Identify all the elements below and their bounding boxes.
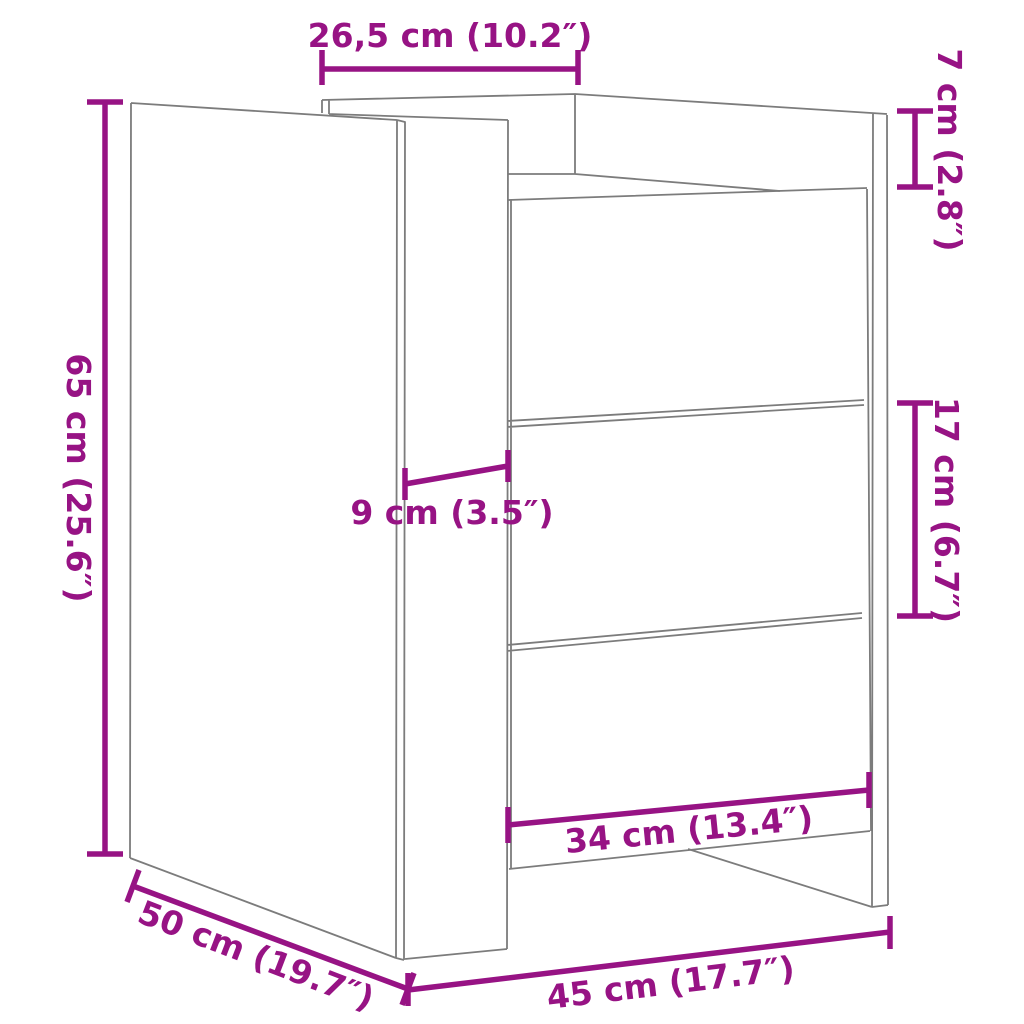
dimension-label-overall-depth: 50 cm (19.7″) [133, 892, 380, 1018]
dimension-top-panel-depth: 26,5 cm (10.2″) [308, 16, 593, 85]
dimension-label-top-rail-height: 7 cm (2.8″) [930, 48, 969, 251]
dimension-line [322, 50, 578, 85]
dimension-label-top-panel-depth: 26,5 cm (10.2″) [308, 16, 593, 55]
dimension-drawer-width: 34 cm (13.4″) [508, 772, 869, 861]
furniture-dimension-diagram: 26,5 cm (10.2″) 7 cm (2.8″) 65 cm (25.6″… [0, 0, 1024, 1024]
dimension-overall-depth: 50 cm (19.7″) [127, 870, 414, 1018]
dimension-overall-width: 45 cm (17.7″) [408, 916, 890, 1017]
dimension-label-overall-height: 65 cm (25.6″) [59, 353, 98, 602]
dimension-side-panel-inset: 9 cm (3.5″) [350, 450, 553, 532]
dimension-top-rail-height: 7 cm (2.8″) [897, 48, 969, 251]
dimension-label-side-panel-inset: 9 cm (3.5″) [350, 493, 553, 532]
dimension-line [897, 111, 933, 187]
dimension-overall-height: 65 cm (25.6″) [59, 102, 123, 854]
diagram-canvas: 26,5 cm (10.2″) 7 cm (2.8″) 65 cm (25.6″… [0, 0, 1024, 1024]
dimension-label-drawer-height: 17 cm (6.7″) [927, 397, 966, 623]
dimension-drawer-height: 17 cm (6.7″) [897, 397, 966, 623]
top-panel [322, 94, 887, 191]
